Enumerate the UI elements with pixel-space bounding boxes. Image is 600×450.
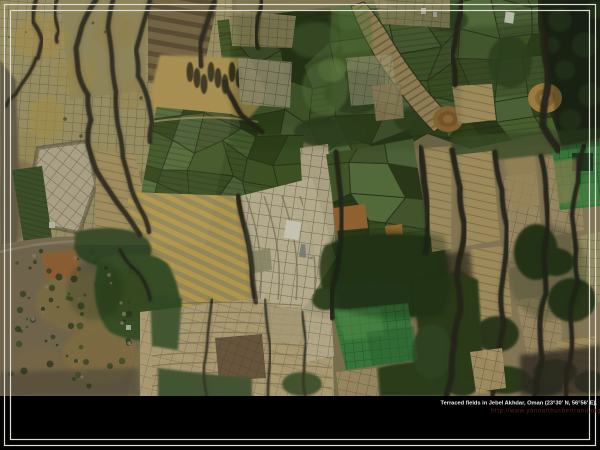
svg-text:Terraced fields in Jebel Akhda: Terraced fields in Jebel Akhdar, Oman (2… <box>441 401 598 407</box>
svg-text:http://www.yannarthusbertrand.: http://www.yannarthusbertrand.org <box>491 409 600 415</box>
